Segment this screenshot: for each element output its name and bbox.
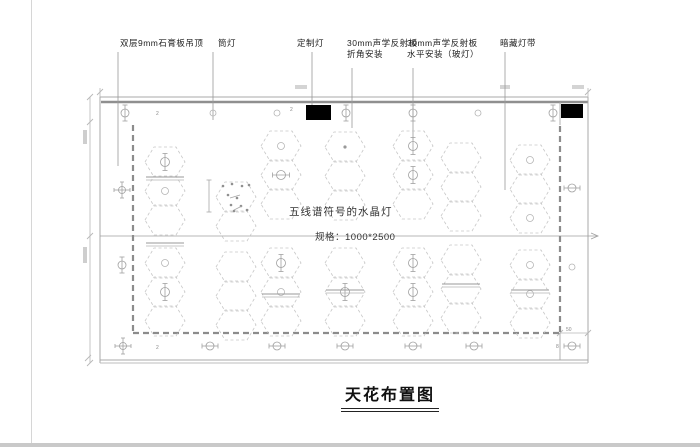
- music-note-dots: [222, 183, 251, 213]
- black-fixture: [306, 105, 331, 120]
- sheet-title: 天花布置图: [341, 381, 439, 412]
- tiny-dim-text: 50: [566, 327, 572, 333]
- black-fixture-blocks: [306, 104, 583, 120]
- callout-label: 双层9mm石膏板吊顶: [120, 38, 203, 49]
- lamp-spec-note: 规格：1000*2500: [315, 229, 395, 243]
- inplan-dimension: [207, 180, 212, 212]
- tiny-dim-text: 8: [556, 344, 559, 350]
- callout-label: 筒灯: [218, 38, 236, 49]
- tiny-dim-text: 2: [156, 345, 159, 351]
- tiny-dim-text: 2: [156, 111, 159, 117]
- callout-line1: 双层9mm石膏板吊顶: [120, 38, 203, 49]
- callout-label: 定制灯: [297, 38, 324, 49]
- tiny-dim-text: 2: [290, 107, 293, 113]
- callout-line1: 定制灯: [297, 38, 324, 49]
- callout-label: 30mm声学反射板水平安装（玻灯）: [407, 38, 479, 60]
- callout-line1: 暗藏灯带: [500, 38, 536, 49]
- callout-label: 暗藏灯带: [500, 38, 536, 49]
- callout-line1: 30mm声学反射板: [407, 38, 479, 49]
- crystal-lamp-note: 五线谱符号的水晶灯: [289, 204, 393, 219]
- callout-line1: 筒灯: [218, 38, 236, 49]
- black-fixture: [561, 104, 583, 118]
- ceiling-plan-drawing: 222850: [0, 0, 700, 447]
- cad-screenshot: 222850 双层9mm石膏板吊顶筒灯定制灯30mm声学反射板折角安装30mm声…: [0, 0, 700, 447]
- callout-leaders: [118, 52, 505, 190]
- callout-line2: 水平安装（玻灯）: [407, 49, 479, 60]
